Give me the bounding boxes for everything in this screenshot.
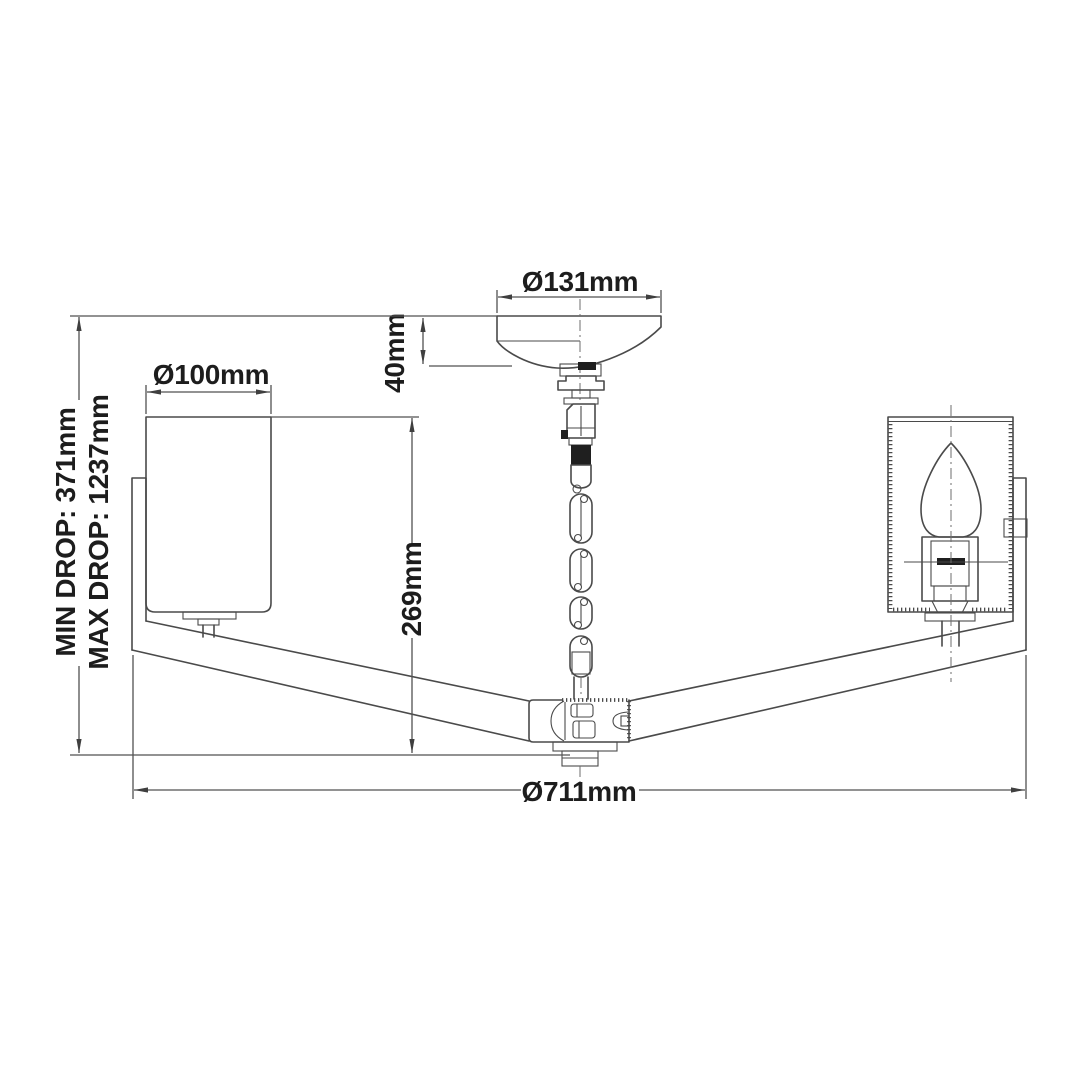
- left-lamp: [146, 417, 271, 637]
- dim-canopy-diameter: Ø131mm: [497, 266, 661, 313]
- dim-min-max-drop: MIN DROP: 371mm MAX DROP: 1237mm: [50, 316, 570, 755]
- hub-screws: [571, 704, 595, 738]
- dim-stem-length: 269mm: [271, 417, 427, 753]
- dim-shade-diameter: Ø100mm: [146, 359, 271, 414]
- left-arm: [132, 478, 529, 741]
- lower-threaded-rod: [572, 652, 590, 674]
- fixture-diameter-label: Ø711mm: [522, 776, 637, 807]
- right-arm: [629, 478, 1027, 741]
- technical-drawing: Ø131mm 40mm Ø100mm 269mm MIN DROP: 371mm…: [0, 0, 1080, 1080]
- shade-diameter-label: Ø100mm: [153, 359, 270, 390]
- left-shade: [146, 417, 271, 612]
- threaded-nipple: [571, 445, 591, 465]
- stem-length-label: 269mm: [396, 541, 427, 636]
- right-arm-end-bar: [1013, 478, 1026, 650]
- diagram-canvas: Ø131mm 40mm Ø100mm 269mm MIN DROP: 371mm…: [0, 0, 1080, 1080]
- set-screw: [561, 430, 568, 439]
- chain-assembly: [558, 362, 604, 699]
- lamp-socket: [904, 537, 1008, 646]
- chain-links: [570, 494, 592, 677]
- max-drop-label: MAX DROP: 1237mm: [83, 394, 114, 669]
- canopy-height-label: 40mm: [379, 313, 410, 393]
- dim-canopy-height: 40mm: [379, 313, 512, 393]
- canopy-diameter-label: Ø131mm: [522, 266, 639, 297]
- shade-clamp: [1004, 519, 1027, 537]
- min-drop-label: MIN DROP: 371mm: [50, 407, 81, 656]
- center-hub: [529, 700, 629, 788]
- ceiling-canopy: [497, 299, 661, 404]
- hub-inner-arc: [551, 701, 564, 741]
- right-lamp: [888, 405, 1013, 682]
- left-arm-end-bar: [132, 478, 146, 650]
